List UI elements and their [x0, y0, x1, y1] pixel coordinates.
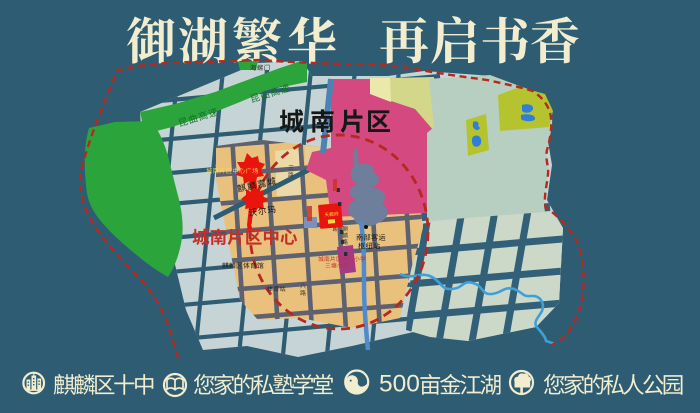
svg-text:500: 500 — [379, 371, 420, 398]
